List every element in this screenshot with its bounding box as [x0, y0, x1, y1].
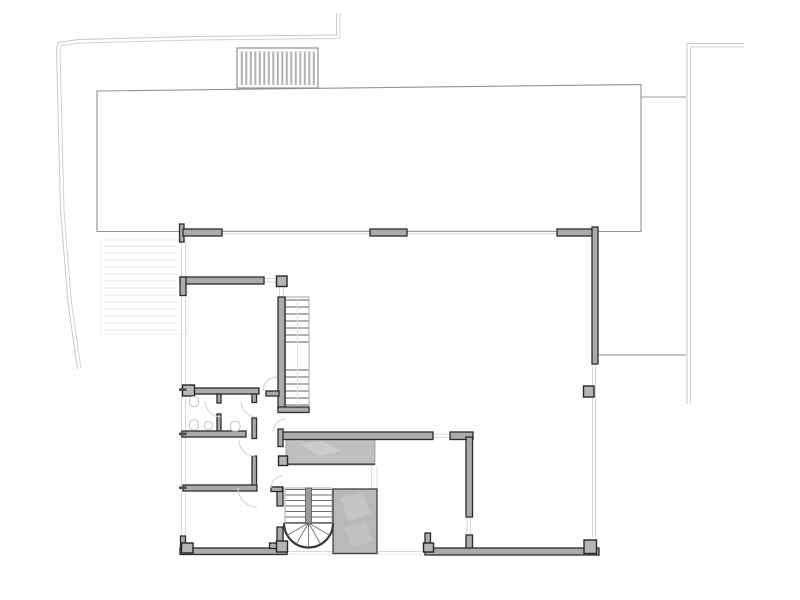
- column-south-east-corner: [584, 540, 597, 554]
- floor-plan-page: [0, 0, 800, 600]
- door-arc-bath-3: [239, 440, 255, 456]
- terrace-border: [101, 240, 188, 334]
- column-entry: [277, 276, 288, 287]
- column-east: [584, 386, 595, 397]
- fixture-sink-1: [204, 421, 212, 429]
- column-south-west-corner: [182, 543, 194, 553]
- fixture-wc-1: [190, 397, 199, 407]
- spiral-jamb-upper-lip: [271, 487, 283, 492]
- mullion-tick-3: [179, 486, 187, 489]
- site-boundary-right-outer: [687, 44, 744, 405]
- wall-bath-partition-v2a: [252, 418, 257, 439]
- wall-entry-screen: [180, 277, 264, 284]
- wall-south-east: [425, 548, 599, 555]
- wall-ramp-north-jamb: [278, 429, 283, 447]
- wall-hall-L-vertical: [466, 437, 473, 517]
- spiral-stair-rail: [306, 488, 312, 524]
- main-stair-door-stub: [266, 391, 279, 396]
- wall-bath-south: [183, 485, 257, 491]
- wall-north-segment-3: [557, 229, 594, 236]
- wall-bath-partition-v2b: [252, 456, 257, 487]
- wall-entry-screen-jamb: [180, 277, 186, 296]
- wall-east-upper: [592, 227, 598, 364]
- column-ramp-west: [279, 456, 288, 466]
- wall-bath-stub-b: [252, 394, 257, 403]
- site-boundary-right-inner: [691, 47, 745, 404]
- floor-plan-drawing: [0, 0, 800, 600]
- wall-north-segment-2: [370, 229, 407, 236]
- upper-floor-outline: [97, 85, 641, 232]
- wall-ramp-north: [282, 432, 433, 440]
- main-stair-bottom-cap: [278, 407, 309, 413]
- column-south-mid-right: [424, 543, 434, 552]
- door-arc-bath-2: [241, 401, 257, 417]
- wall-bath-stub-a: [217, 394, 221, 403]
- wall-bath-mid: [182, 431, 246, 437]
- fixture-sink-2: [231, 422, 241, 432]
- mullion-tick-1: [179, 388, 187, 391]
- wall-north-segment-1: [183, 229, 222, 236]
- door-arc-stair: [263, 377, 277, 391]
- mullion-tick-2: [179, 433, 187, 436]
- door-arc-spiral: [271, 476, 283, 488]
- column-south-mid-left: [277, 541, 288, 552]
- fixture-wc-2: [190, 420, 199, 430]
